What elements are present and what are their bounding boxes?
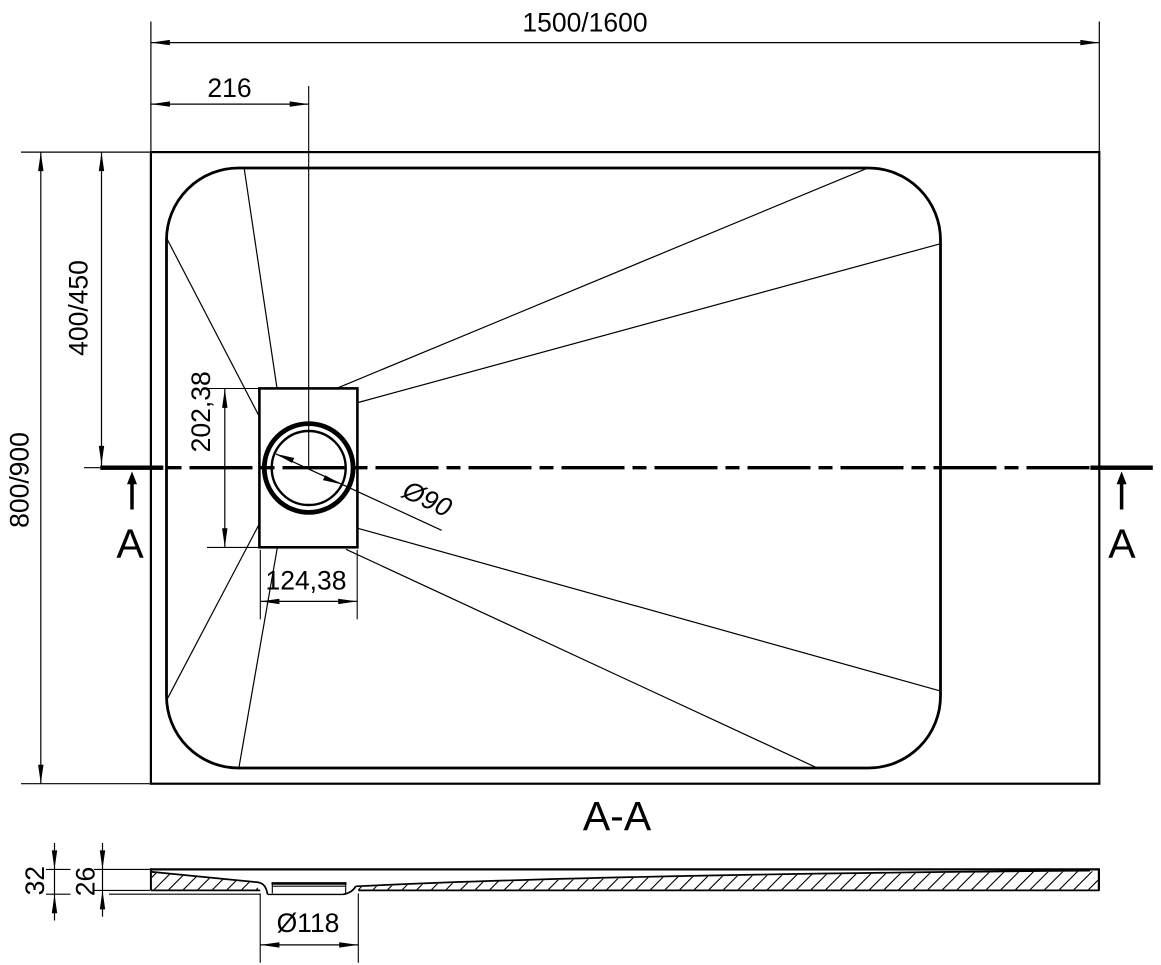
svg-text:202,38: 202,38 [186,371,216,452]
svg-text:1500/1600: 1500/1600 [522,8,647,38]
svg-text:32: 32 [20,866,50,895]
svg-text:A: A [1108,521,1136,567]
svg-text:124,38: 124,38 [265,566,346,596]
svg-text:A-A: A-A [583,793,652,839]
svg-text:A: A [116,521,144,567]
svg-text:26: 26 [71,867,101,896]
svg-text:800/900: 800/900 [5,432,35,528]
svg-text:400/450: 400/450 [64,260,94,356]
svg-text:216: 216 [207,73,251,103]
svg-text:Ø118: Ø118 [277,908,340,938]
